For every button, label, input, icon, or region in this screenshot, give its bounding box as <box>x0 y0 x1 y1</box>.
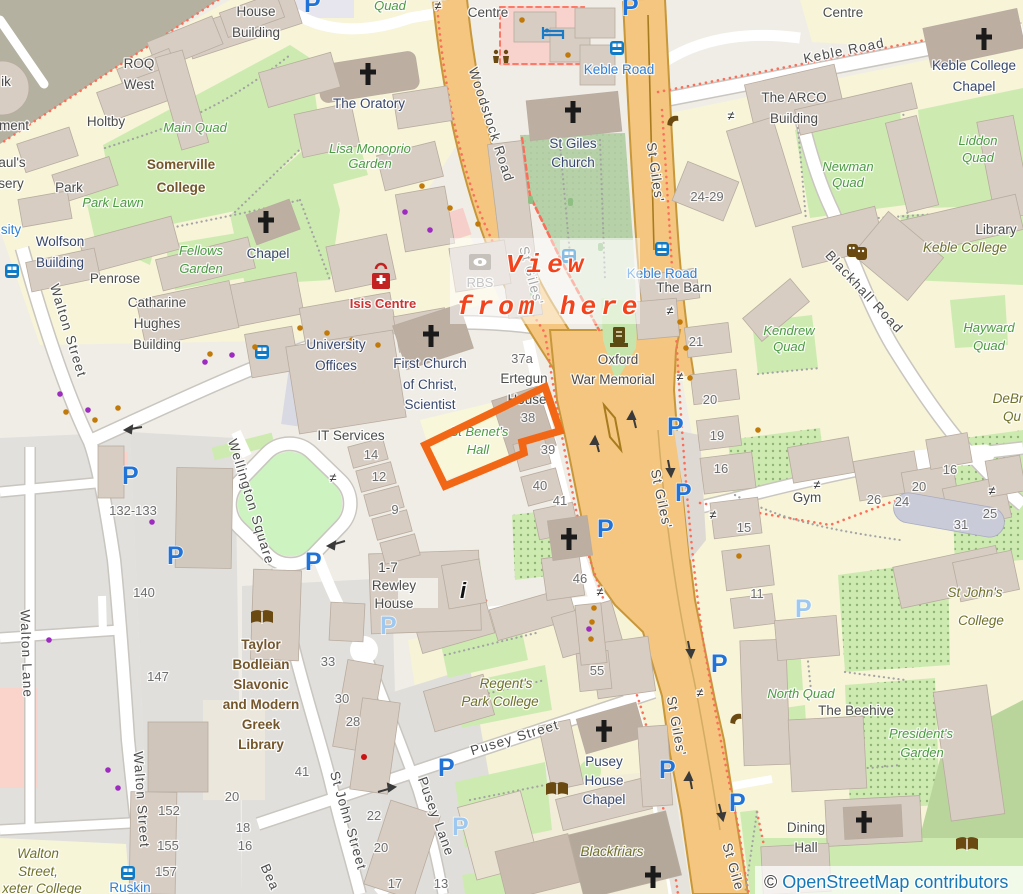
svg-text:P: P <box>167 542 184 570</box>
svg-text:≠: ≠ <box>329 470 336 485</box>
svg-text:Main Quad: Main Quad <box>163 120 227 135</box>
svg-text:Keble College: Keble College <box>932 58 1016 73</box>
svg-text:16: 16 <box>943 462 957 477</box>
svg-text:St Giles: St Giles <box>549 136 597 151</box>
svg-text:46: 46 <box>573 571 587 586</box>
svg-text:11: 11 <box>750 586 764 601</box>
svg-text:aul's: aul's <box>0 155 26 170</box>
svg-text:Quad: Quad <box>374 0 407 13</box>
svg-text:20: 20 <box>912 479 926 494</box>
svg-text:House: House <box>374 596 413 611</box>
svg-text:16: 16 <box>714 461 728 476</box>
svg-text:≠: ≠ <box>727 108 734 123</box>
svg-text:First Church: First Church <box>393 356 467 371</box>
svg-text:152: 152 <box>158 803 180 818</box>
svg-text:9: 9 <box>391 502 398 517</box>
svg-text:Quad: Quad <box>973 338 1006 353</box>
svg-text:The Barn: The Barn <box>656 280 712 295</box>
svg-text:Library: Library <box>238 737 284 752</box>
svg-text:Holtby: Holtby <box>87 114 126 129</box>
svg-text:Rewley: Rewley <box>372 578 417 593</box>
svg-text:Hall: Hall <box>794 840 817 855</box>
svg-text:Taylor: Taylor <box>241 637 281 652</box>
svg-text:Quad: Quad <box>773 339 806 354</box>
svg-text:Keble College: Keble College <box>923 240 1007 255</box>
svg-text:Library: Library <box>975 222 1017 237</box>
svg-text:© OpenStreetMap contributors: © OpenStreetMap contributors <box>764 872 1008 892</box>
svg-text:P: P <box>675 479 692 507</box>
svg-text:24-29: 24-29 <box>690 189 723 204</box>
svg-text:sity: sity <box>1 222 22 237</box>
svg-text:ment: ment <box>0 118 29 133</box>
svg-text:P: P <box>659 756 676 784</box>
svg-text:Blackfriars: Blackfriars <box>580 844 643 859</box>
svg-text:P: P <box>438 754 455 782</box>
svg-text:Kendrew: Kendrew <box>763 323 816 338</box>
svg-text:P: P <box>305 548 322 576</box>
svg-text:38: 38 <box>521 410 535 425</box>
svg-text:P: P <box>597 515 614 543</box>
svg-text:Chapel: Chapel <box>583 792 626 807</box>
svg-text:P: P <box>304 0 321 18</box>
svg-text:Regent's: Regent's <box>480 676 533 691</box>
svg-text:Ruskin: Ruskin <box>109 880 150 894</box>
svg-text:College: College <box>958 613 1004 628</box>
svg-text:from here: from here <box>457 292 642 322</box>
svg-text:147: 147 <box>147 669 169 684</box>
svg-text:Garden: Garden <box>900 745 943 760</box>
svg-text:≠: ≠ <box>596 584 603 599</box>
svg-text:Chapel: Chapel <box>953 79 996 94</box>
svg-text:Hughes: Hughes <box>134 316 181 331</box>
svg-text:Quad: Quad <box>962 150 995 165</box>
svg-text:Keble Road: Keble Road <box>584 62 655 77</box>
svg-text:North Quad: North Quad <box>767 686 835 701</box>
svg-text:1-7: 1-7 <box>378 560 398 575</box>
svg-text:Qu: Qu <box>1003 409 1022 424</box>
svg-text:55: 55 <box>590 663 604 678</box>
svg-text:140: 140 <box>133 585 155 600</box>
svg-text:P: P <box>622 0 639 21</box>
svg-text:House: House <box>584 773 623 788</box>
svg-text:37a: 37a <box>511 351 533 366</box>
svg-text:The ARCO: The ARCO <box>761 90 826 105</box>
svg-text:Building: Building <box>232 25 280 40</box>
svg-text:War Memorial: War Memorial <box>571 372 655 387</box>
svg-text:31: 31 <box>954 517 968 532</box>
svg-text:P: P <box>729 789 746 817</box>
svg-text:West: West <box>124 77 155 92</box>
svg-text:P: P <box>795 595 812 623</box>
svg-text:Centre: Centre <box>468 5 509 20</box>
svg-text:Park: Park <box>55 180 83 195</box>
svg-text:IT Services: IT Services <box>317 428 385 443</box>
svg-text:DeBr: DeBr <box>993 391 1023 406</box>
svg-text:ROQ: ROQ <box>124 56 155 71</box>
svg-text:Penrose: Penrose <box>90 271 140 286</box>
svg-text:Walton: Walton <box>17 846 59 861</box>
svg-text:Fellows: Fellows <box>179 243 224 258</box>
svg-text:22: 22 <box>367 808 381 823</box>
svg-text:13: 13 <box>434 876 448 891</box>
svg-text:Garden: Garden <box>179 261 222 276</box>
svg-text:Ertegun: Ertegun <box>500 371 547 386</box>
svg-text:Walton Lane: Walton Lane <box>17 609 35 698</box>
svg-text:Dining: Dining <box>787 820 825 835</box>
svg-text:20: 20 <box>225 789 239 804</box>
svg-text:Pusey: Pusey <box>585 754 623 769</box>
svg-text:17: 17 <box>388 876 402 891</box>
svg-text:18: 18 <box>236 820 250 835</box>
svg-text:28: 28 <box>346 714 360 729</box>
svg-text:College: College <box>157 180 206 195</box>
svg-text:Scientist: Scientist <box>404 397 455 412</box>
svg-text:House: House <box>236 4 275 19</box>
svg-text:Garden: Garden <box>348 156 391 171</box>
svg-text:Somerville: Somerville <box>147 157 216 172</box>
svg-text:Wolfson: Wolfson <box>36 234 85 249</box>
svg-text:15: 15 <box>737 520 751 535</box>
svg-text:P: P <box>667 413 684 441</box>
svg-text:Park College: Park College <box>461 694 538 709</box>
svg-text:Chapel: Chapel <box>247 246 290 261</box>
svg-text:Centre: Centre <box>823 5 864 20</box>
svg-text:View: View <box>506 250 588 280</box>
svg-text:St John's: St John's <box>947 585 1002 600</box>
svg-text:40: 40 <box>533 478 547 493</box>
svg-text:Greek: Greek <box>242 717 281 732</box>
svg-text:P: P <box>380 612 397 640</box>
svg-text:P: P <box>122 462 139 490</box>
svg-text:Catharine: Catharine <box>128 295 187 310</box>
svg-text:Isis Centre: Isis Centre <box>350 296 416 311</box>
svg-text:19: 19 <box>710 428 724 443</box>
svg-text:of Christ,: of Christ, <box>403 377 457 392</box>
svg-text:P: P <box>711 650 728 678</box>
svg-text:≠: ≠ <box>666 303 673 318</box>
svg-text:41: 41 <box>295 764 309 779</box>
svg-text:University: University <box>306 337 366 352</box>
svg-text:157: 157 <box>155 864 177 879</box>
svg-text:President's: President's <box>889 726 953 741</box>
svg-text:30: 30 <box>335 691 349 706</box>
svg-text:132-133: 132-133 <box>109 503 157 518</box>
svg-text:Liddon: Liddon <box>958 133 997 148</box>
svg-text:sery: sery <box>0 176 24 191</box>
svg-text:21: 21 <box>689 334 703 349</box>
svg-text:39: 39 <box>541 442 555 457</box>
svg-text:16: 16 <box>238 838 252 853</box>
svg-text:≠: ≠ <box>696 685 703 700</box>
svg-text:Park Lawn: Park Lawn <box>82 195 143 210</box>
svg-text:Building: Building <box>770 111 818 126</box>
svg-text:Bodleian: Bodleian <box>232 657 289 672</box>
svg-text:xeter College: xeter College <box>1 881 82 894</box>
svg-text:≠: ≠ <box>988 483 995 498</box>
svg-text:24: 24 <box>895 494 909 509</box>
svg-text:25: 25 <box>983 506 997 521</box>
svg-text:≠: ≠ <box>676 369 683 384</box>
svg-text:≠: ≠ <box>709 507 716 522</box>
svg-text:41: 41 <box>553 493 567 508</box>
svg-text:33: 33 <box>321 654 335 669</box>
svg-text:≠: ≠ <box>434 0 441 13</box>
svg-text:20: 20 <box>703 392 717 407</box>
svg-text:i: i <box>460 578 467 603</box>
svg-text:155: 155 <box>157 838 179 853</box>
svg-text:Slavonic: Slavonic <box>233 677 289 692</box>
svg-text:Offices: Offices <box>315 358 357 373</box>
svg-text:P: P <box>452 813 469 841</box>
svg-text:26: 26 <box>867 492 881 507</box>
svg-text:Hall: Hall <box>467 442 491 457</box>
svg-text:Building: Building <box>36 255 84 270</box>
svg-text:The Oratory: The Oratory <box>333 96 405 111</box>
svg-text:ik: ik <box>1 74 11 89</box>
svg-text:Quad: Quad <box>832 175 865 190</box>
svg-text:14: 14 <box>364 447 378 462</box>
svg-text:20: 20 <box>374 840 388 855</box>
svg-text:Oxford: Oxford <box>598 352 639 367</box>
svg-text:and Modern: and Modern <box>223 697 300 712</box>
svg-text:Newman: Newman <box>822 159 873 174</box>
svg-text:The Beehive: The Beehive <box>818 703 894 718</box>
svg-text:Gym: Gym <box>793 490 822 505</box>
svg-text:Street,: Street, <box>18 864 58 879</box>
svg-text:Hayward: Hayward <box>963 320 1015 335</box>
svg-text:12: 12 <box>372 469 386 484</box>
svg-text:Church: Church <box>551 155 595 170</box>
svg-text:Building: Building <box>133 337 181 352</box>
svg-text:Lisa Monoprio: Lisa Monoprio <box>329 141 411 156</box>
